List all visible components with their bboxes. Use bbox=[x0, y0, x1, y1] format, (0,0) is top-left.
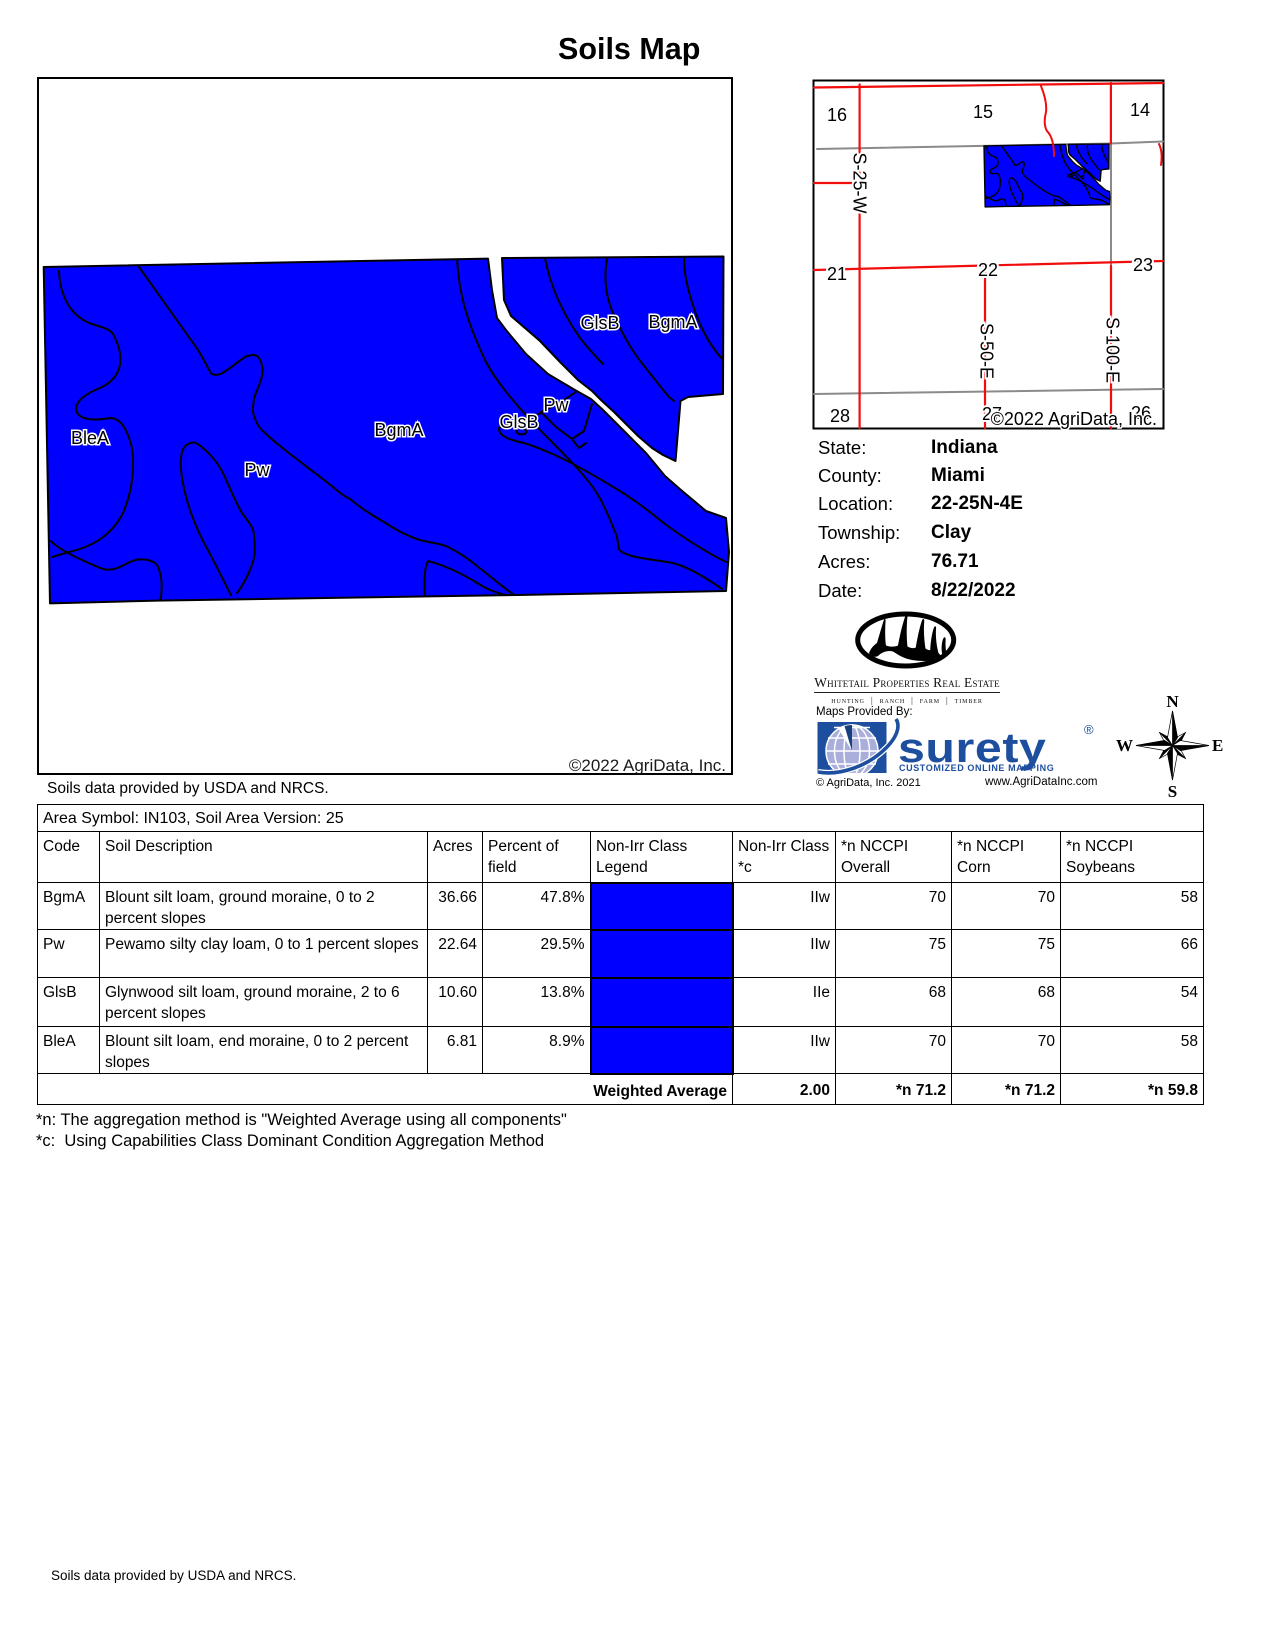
svg-text:S-25-W: S-25-W bbox=[849, 152, 869, 213]
svg-text:S: S bbox=[1168, 782, 1177, 801]
svg-text:W: W bbox=[1116, 736, 1133, 755]
svg-text:21: 21 bbox=[827, 264, 847, 284]
svg-text:15: 15 bbox=[973, 102, 993, 122]
svg-text:E: E bbox=[1212, 736, 1223, 755]
svg-text:GlsB: GlsB bbox=[580, 313, 619, 333]
svg-text:22: 22 bbox=[978, 260, 998, 280]
svg-text:Pw: Pw bbox=[244, 460, 270, 480]
svg-text:©2022 AgriData, Inc.: ©2022 AgriData, Inc. bbox=[991, 409, 1157, 429]
svg-text:©2022 AgriData, Inc.: ©2022 AgriData, Inc. bbox=[569, 756, 726, 775]
svg-text:S-50-E: S-50-E bbox=[976, 323, 996, 379]
svg-text:16: 16 bbox=[827, 105, 847, 125]
svg-text:Pw: Pw bbox=[543, 395, 569, 415]
svg-text:28: 28 bbox=[830, 406, 850, 426]
svg-text:GlsB: GlsB bbox=[499, 412, 538, 432]
svg-text:BgmA: BgmA bbox=[374, 420, 423, 440]
svg-text:23: 23 bbox=[1133, 255, 1153, 275]
svg-text:BgmA: BgmA bbox=[648, 312, 697, 332]
svg-text:N: N bbox=[1166, 692, 1179, 711]
svg-text:S-100-E: S-100-E bbox=[1102, 317, 1122, 383]
svg-text:BleA: BleA bbox=[71, 428, 109, 448]
svg-text:14: 14 bbox=[1130, 100, 1150, 120]
